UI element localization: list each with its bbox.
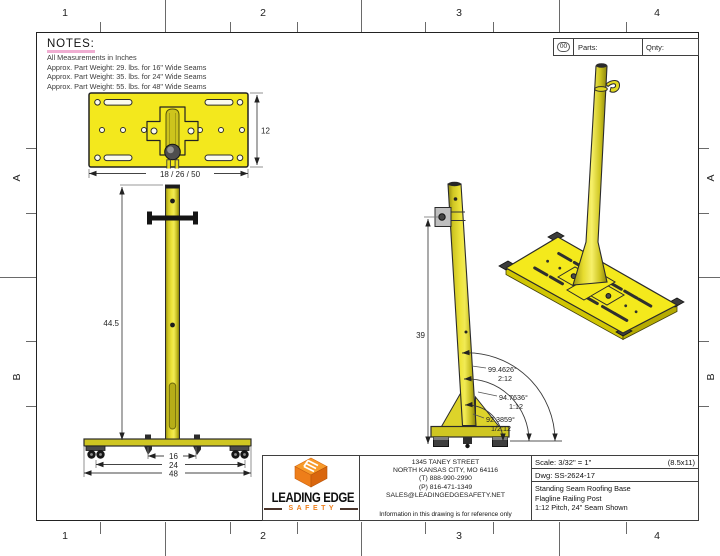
- angle-2-pitch: 1:12: [509, 402, 523, 411]
- note-line: Approx. Part Weight: 35. lbs. for 24" Wi…: [47, 72, 267, 81]
- company-info: 1345 TANEY STREET NORTH KANSAS CITY, MO …: [359, 456, 531, 520]
- angle-1-value: 99.4626°: [488, 365, 517, 374]
- logo-cube-icon: [263, 456, 359, 490]
- description-line: 1:12 Pitch, 24" Seam Shown: [535, 503, 695, 513]
- company-logo: LEADING EDGE SAFETY: [263, 456, 359, 520]
- description-line: Standing Seam Roofing Base: [535, 484, 695, 494]
- logo-rule-right: [340, 508, 358, 510]
- angle-2-value: 94.7636°: [499, 393, 528, 402]
- plate-slot: [205, 155, 233, 161]
- post-slot: [169, 383, 175, 429]
- dim-base-48: 48: [169, 470, 178, 479]
- address-line: NORTH KANSAS CITY, MO 64116: [360, 467, 531, 475]
- seam-clamp: [193, 446, 201, 455]
- notes-block: NOTES: All Measurements in Inches Approx…: [47, 38, 267, 91]
- qty-label-cell: Qnty:: [642, 39, 698, 55]
- logo-safety-row: SAFETY: [263, 505, 359, 512]
- note-line: All Measurements in Inches: [47, 53, 267, 62]
- drawing-description: Standing Seam Roofing Base Flagline Rail…: [532, 482, 698, 515]
- roller-foot-right: [230, 446, 249, 459]
- plate-slot: [104, 155, 132, 161]
- base-bar: [84, 439, 251, 446]
- parts-label-cell: Parts:: [574, 39, 642, 55]
- address-line: 1345 TANEY STREET: [360, 459, 531, 467]
- address-line: SALES@LEADINGEDGESAFETY.NET: [360, 492, 531, 500]
- disclaimer: Information in this drawing is for refer…: [360, 511, 531, 520]
- parts-row-number: 00: [557, 42, 570, 52]
- side-view-post: [431, 182, 509, 448]
- address-line: (P) 816-471-1349: [360, 484, 531, 492]
- collar: [595, 87, 608, 92]
- angle-3-value: 92.3859°: [486, 415, 515, 424]
- dim-plate-width: 18 / 26 / 50: [160, 170, 201, 179]
- dwg-row: Dwg: SS-2624-17: [532, 469, 698, 482]
- address-line: (T) 888-990-2990: [360, 475, 531, 483]
- sheet-size: (8.5x11): [668, 458, 695, 467]
- roller-foot-left: [86, 446, 105, 459]
- angle-1-pitch: 2:12: [498, 374, 512, 383]
- scale-row: Scale: 3/32" = 1" (8.5x11): [532, 456, 698, 469]
- notes-title: NOTES:: [47, 38, 267, 50]
- dwg-number: Dwg: SS-2624-17: [535, 471, 595, 480]
- plate-slot: [205, 100, 233, 106]
- note-line: Approx. Part Weight: 55. lbs. for 48" Wi…: [47, 82, 267, 91]
- angle-3-pitch: 1/2:12: [491, 424, 511, 433]
- logo-safety-text: SAFETY: [285, 505, 337, 512]
- parts-row-number-cell: 00: [554, 39, 574, 55]
- plate-slot: [104, 100, 132, 106]
- top-view-plate: [89, 93, 248, 171]
- isometric-view: [499, 63, 684, 339]
- clamp-bar: [151, 216, 194, 221]
- description-line: Flagline Railing Post: [535, 494, 695, 504]
- parts-table: 00 Parts: Qnty:: [553, 38, 699, 56]
- scale-value: Scale: 3/32" = 1": [535, 458, 591, 467]
- drawing-sheet: 1 2 3 4 1 2 3 4 A B A B: [0, 0, 720, 556]
- dim-post-height: 44.5: [103, 319, 119, 328]
- drawing-title-block: Scale: 3/32" = 1" (8.5x11) Dwg: SS-2624-…: [531, 456, 698, 520]
- title-block: LEADING EDGE SAFETY 1345 TANEY STREET NO…: [262, 455, 699, 521]
- note-line: Approx. Part Weight: 29. lbs. for 16" Wi…: [47, 63, 267, 72]
- logo-rule-left: [264, 508, 282, 510]
- gusset: [442, 389, 464, 427]
- logo-wordmark: LEADING EDGE: [272, 489, 351, 505]
- hook: [606, 80, 620, 92]
- dim-side-height: 39: [416, 331, 425, 340]
- dim-plate-depth: 12: [261, 127, 270, 136]
